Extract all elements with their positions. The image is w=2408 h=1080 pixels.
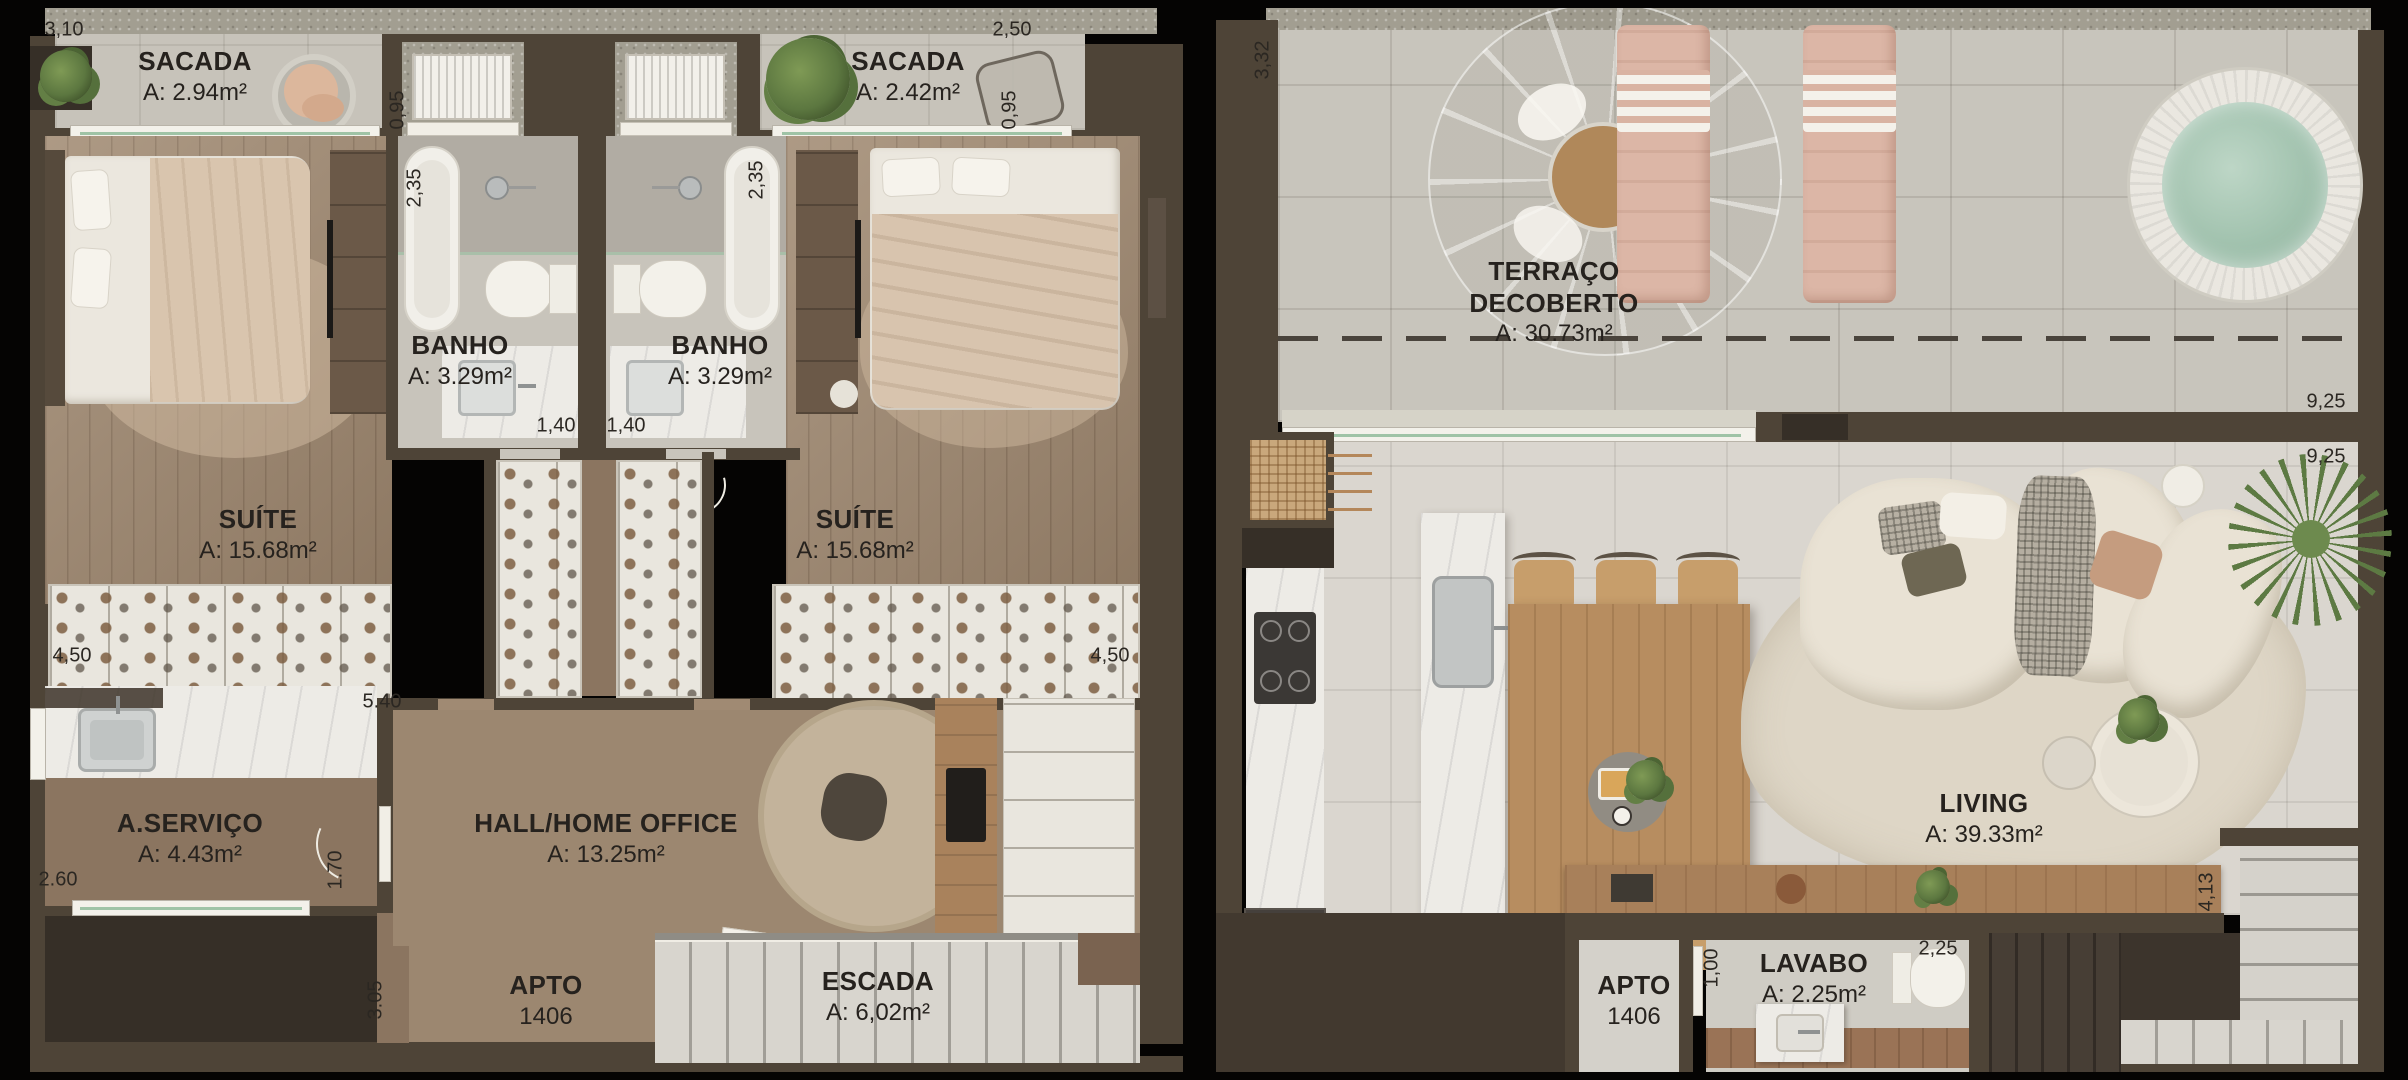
closet-suite-left xyxy=(48,584,392,702)
ac-unit-icon xyxy=(625,54,725,120)
wall-stairs-top xyxy=(2220,828,2384,846)
outer-wall-top xyxy=(45,8,1157,34)
room-name: SUÍTE xyxy=(199,504,316,536)
lounger-towel xyxy=(1617,70,1710,132)
skewer-icon xyxy=(1328,454,1372,457)
chair-back xyxy=(1594,552,1658,570)
coffee-cup xyxy=(1612,806,1632,826)
burner-icon xyxy=(1288,620,1310,642)
dim-label: 4,50 xyxy=(1091,645,1130,668)
shower-arm xyxy=(508,186,536,189)
stair-wood-block xyxy=(1078,933,1140,985)
dim-label: 9,25 xyxy=(2307,391,2346,414)
wall-right-window xyxy=(1148,198,1166,318)
pillow xyxy=(881,157,941,198)
sideboard xyxy=(1565,865,2221,915)
room-area: A: 30.73m² xyxy=(1429,319,1679,348)
apto-label: APTO 1406 xyxy=(1597,970,1670,1031)
sofa-throw xyxy=(2013,475,2098,678)
shoe-closet-left xyxy=(496,460,582,698)
room-label-suite-right: SUÍTE A: 15.68m² xyxy=(796,504,913,565)
dim-label: 1,00 xyxy=(1701,949,1724,988)
chair-back xyxy=(1512,552,1576,570)
floor-plan-2: TERRAÇO DECOBERTO A: 30.73m² LIVING A: 3… xyxy=(1216,8,2400,1072)
monitor-icon xyxy=(946,768,986,842)
lounger-towel xyxy=(1803,70,1896,132)
room-name: SACADA xyxy=(138,46,252,78)
wall-divider-inset xyxy=(1782,414,1848,440)
papasan-pillow xyxy=(302,94,344,122)
wall-bottom xyxy=(30,1040,700,1072)
sun-lounger xyxy=(1803,25,1896,303)
room-area: A: 3.29m² xyxy=(408,362,512,391)
table-plant xyxy=(2118,698,2160,740)
dim-label: 0,95 xyxy=(387,91,410,130)
room-area: A: 39.33m² xyxy=(1925,820,2042,849)
room-area: A: 15.68m² xyxy=(796,536,913,565)
wall-left xyxy=(1216,20,1278,440)
dim-label: 3.05 xyxy=(365,981,388,1020)
door-gap xyxy=(438,699,494,710)
room-label-sacada-right: SACADA A: 2.42m² xyxy=(851,46,965,107)
dim-label: 5.40 xyxy=(363,691,402,714)
room-label-lavabo: LAVABO A: 2.25m² xyxy=(1760,948,1868,1009)
dim-label: 9,25 xyxy=(2307,446,2346,469)
dim-label: 2,50 xyxy=(993,19,1032,42)
dim-label: 2,25 xyxy=(1919,938,1958,961)
floor-plan-1: SACADA A: 2.94m² SACADA A: 2.42m² BANHO … xyxy=(30,8,1183,1072)
window-servico xyxy=(30,708,46,780)
apto-name: APTO xyxy=(509,970,582,1002)
toilet-tank xyxy=(613,264,641,314)
room-name: BANHO xyxy=(408,330,512,362)
toilet-tank xyxy=(1892,952,1912,1004)
closet-corridor-floor xyxy=(582,460,616,696)
room-label-suite-left: SUÍTE A: 15.68m² xyxy=(199,504,316,565)
room-name: BANHO xyxy=(668,330,772,362)
faucet-icon xyxy=(1798,1030,1820,1034)
stair-landing-dark xyxy=(1989,933,2121,1072)
wall-apto-left xyxy=(1565,940,1579,1072)
wall-stairs-right xyxy=(2358,846,2384,1072)
wall-mid xyxy=(386,448,800,460)
closet-suite-right xyxy=(772,584,1140,702)
coffee-table-small xyxy=(2042,736,2096,790)
wardrobe-panel xyxy=(796,150,858,414)
plant-icon xyxy=(40,50,92,102)
palm-center xyxy=(2292,520,2330,558)
island-sink xyxy=(1432,576,1494,688)
faucet-icon xyxy=(518,384,536,388)
apto-number: 1406 xyxy=(1597,1002,1670,1031)
sideboard-plant xyxy=(1916,870,1950,904)
room-name: TERRAÇO DECOBERTO xyxy=(1429,256,1679,319)
wardrobe-panel xyxy=(330,150,392,414)
bed-duvet xyxy=(150,158,310,402)
room-name: A.SERVIÇO xyxy=(117,808,263,840)
stair-core xyxy=(2121,933,2240,1021)
wall-closet-right xyxy=(702,452,714,702)
burner-icon xyxy=(1288,670,1310,692)
room-area: A: 2.42m² xyxy=(851,78,965,107)
laundry-sink-inner xyxy=(90,720,144,760)
bed-headboard xyxy=(45,150,65,406)
burner-icon xyxy=(1260,620,1282,642)
room-area: A: 3.29m² xyxy=(668,362,772,391)
dim-label: 4,13 xyxy=(2196,873,2219,912)
wall-closet-left xyxy=(484,452,496,702)
table-plant xyxy=(1626,760,1666,800)
sideboard-books xyxy=(1611,874,1653,902)
room-label-servico: A.SERVIÇO A: 4.43m² xyxy=(117,808,263,869)
stairs-landing xyxy=(2121,1020,2358,1070)
grill-icon xyxy=(1250,440,1326,520)
shower-head-icon xyxy=(485,176,509,200)
room-area: A: 4.43m² xyxy=(117,840,263,869)
room-label-living: LIVING A: 39.33m² xyxy=(1925,788,2042,849)
sideboard-bowl xyxy=(1776,874,1806,904)
window-living xyxy=(1282,427,1756,442)
dim-label: 4,50 xyxy=(53,645,92,668)
stair-rail xyxy=(655,933,1140,942)
dim-label: 1,40 xyxy=(537,415,576,438)
room-area: A: 13.25m² xyxy=(474,840,738,869)
wall-banho-divider-left xyxy=(386,136,398,454)
pillow xyxy=(70,169,112,232)
chair-back xyxy=(1676,552,1740,570)
floorplan-canvas: SACADA A: 2.94m² SACADA A: 2.42m² BANHO … xyxy=(0,0,2408,1080)
dim-label: 0,95 xyxy=(999,91,1022,130)
faucet-icon xyxy=(116,696,120,714)
dim-label: 1,40 xyxy=(607,415,646,438)
grill-counter xyxy=(1242,528,1334,568)
toilet-tank xyxy=(549,264,577,314)
room-label-terraco: TERRAÇO DECOBERTO A: 30.73m² xyxy=(1429,256,1679,349)
window-sill xyxy=(1282,410,1756,427)
room-name: LAVABO xyxy=(1760,948,1868,980)
window-shaft xyxy=(72,900,310,916)
burner-icon xyxy=(1260,670,1282,692)
dim-label: 1.70 xyxy=(325,851,348,890)
side-table xyxy=(2161,464,2205,508)
bed-duvet xyxy=(872,214,1118,408)
apto-name: APTO xyxy=(1597,970,1670,1002)
dim-label: 3,32 xyxy=(1252,41,1275,80)
upper-cabinet-shadow xyxy=(45,688,163,708)
wall-banho-center xyxy=(578,136,606,466)
wall-stairs-bottom xyxy=(2121,1064,2384,1072)
dim-label: 2.60 xyxy=(39,869,78,892)
hot-tub-water xyxy=(2162,102,2328,268)
ac-sill-left xyxy=(407,122,519,136)
wall-lavabo-right xyxy=(1969,933,1989,1072)
tv-icon xyxy=(855,220,861,338)
shower-arm xyxy=(652,186,680,189)
ac-sill-right xyxy=(620,122,732,136)
side-table xyxy=(830,380,858,408)
wall-right xyxy=(2356,30,2384,448)
room-name: ESCADA xyxy=(822,966,934,998)
room-label-sacada-left: SACADA A: 2.94m² xyxy=(138,46,252,107)
door-gap xyxy=(694,699,750,710)
room-label-hall: HALL/HOME OFFICE A: 13.25m² xyxy=(474,808,738,869)
room-name: SUÍTE xyxy=(796,504,913,536)
room-name: LIVING xyxy=(1925,788,2042,820)
pillow xyxy=(70,247,112,310)
room-area: A: 15.68m² xyxy=(199,536,316,565)
ac-unit-icon xyxy=(412,54,512,120)
plant-icon xyxy=(766,38,850,120)
wall-lavabo-left xyxy=(1679,940,1693,1072)
toilet xyxy=(485,260,553,318)
pillow xyxy=(1939,492,2008,540)
shower-head-icon xyxy=(678,176,702,200)
shaft-void xyxy=(45,916,377,1042)
apto-label: APTO 1406 xyxy=(509,970,582,1031)
dim-label: 2,35 xyxy=(404,169,427,208)
room-name: SACADA xyxy=(851,46,965,78)
room-label-escada: ESCADA A: 6,02m² xyxy=(822,966,934,1027)
dim-label: 3,10 xyxy=(45,19,84,42)
shelving xyxy=(1003,698,1135,946)
dim-label: 2,35 xyxy=(746,161,769,200)
room-label-banho-right: BANHO A: 3.29m² xyxy=(668,330,772,391)
room-name: HALL/HOME OFFICE xyxy=(474,808,738,840)
lower-left-wall xyxy=(1216,913,1566,1072)
tv-icon xyxy=(327,220,333,338)
room-area: A: 2.94m² xyxy=(138,78,252,107)
shoe-closet-right xyxy=(616,460,702,698)
toilet xyxy=(639,260,707,318)
apto-number: 1406 xyxy=(509,1002,582,1031)
room-area: A: 2.25m² xyxy=(1760,980,1868,1009)
room-area: A: 6,02m² xyxy=(822,998,934,1027)
pillow xyxy=(951,157,1011,198)
room-label-banho-left: BANHO A: 3.29m² xyxy=(408,330,512,391)
